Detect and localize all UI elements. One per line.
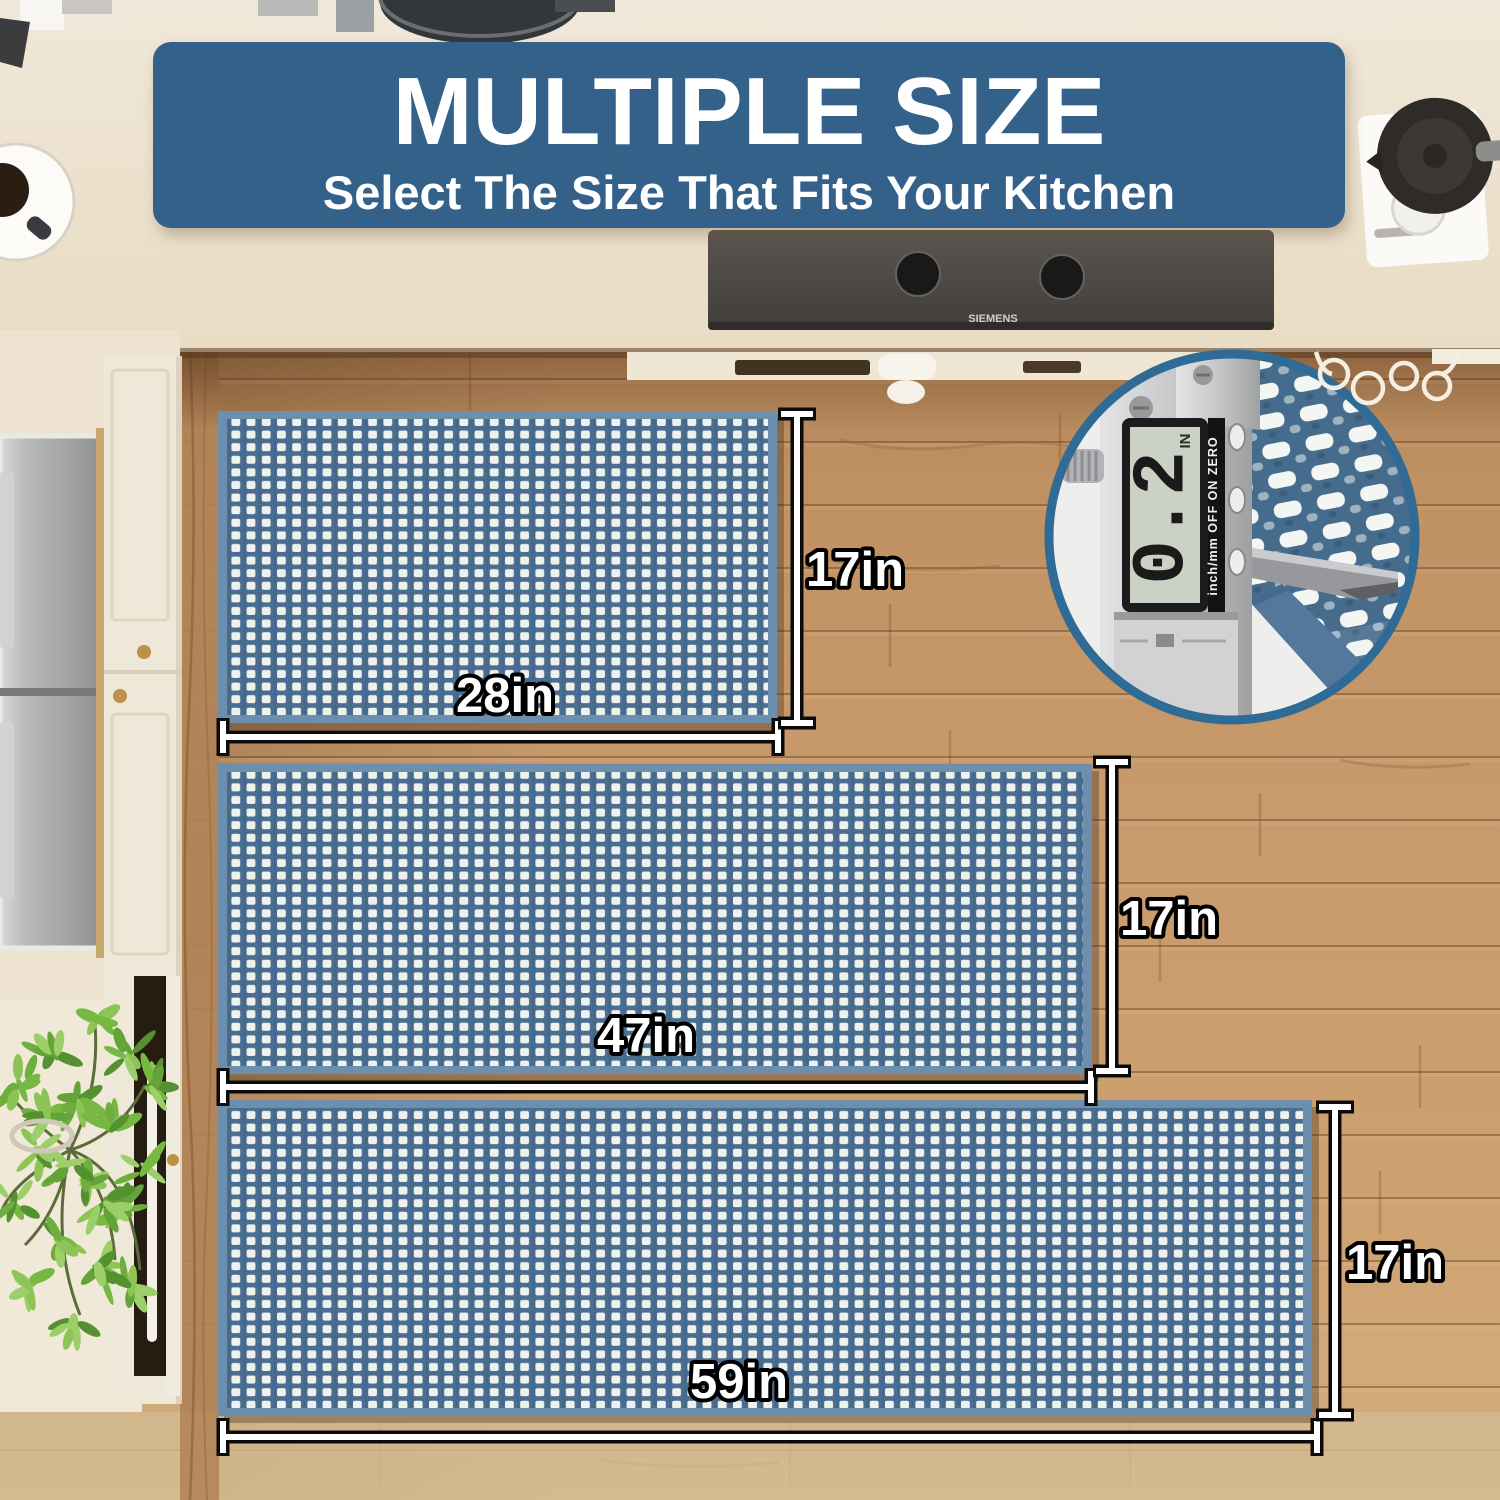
svg-text:Select The Size That Fits Your: Select The Size That Fits Your Kitchen <box>323 166 1175 219</box>
svg-text:47in: 47in <box>597 1009 695 1063</box>
svg-text:SIEMENS: SIEMENS <box>968 313 1018 325</box>
svg-text:17in: 17in <box>1346 1236 1444 1290</box>
svg-text:17in: 17in <box>806 543 904 597</box>
svg-text:inch/mm OFF ON ZERO: inch/mm OFF ON ZERO <box>1206 436 1220 595</box>
svg-text:17in: 17in <box>1120 892 1218 946</box>
svg-text:59in: 59in <box>690 1355 788 1409</box>
svg-text:MULTIPLE SIZE: MULTIPLE SIZE <box>393 58 1106 165</box>
svg-text:28in: 28in <box>456 669 554 723</box>
svg-text:IN: IN <box>1177 434 1194 449</box>
svg-text:0.2: 0.2 <box>1122 451 1206 584</box>
